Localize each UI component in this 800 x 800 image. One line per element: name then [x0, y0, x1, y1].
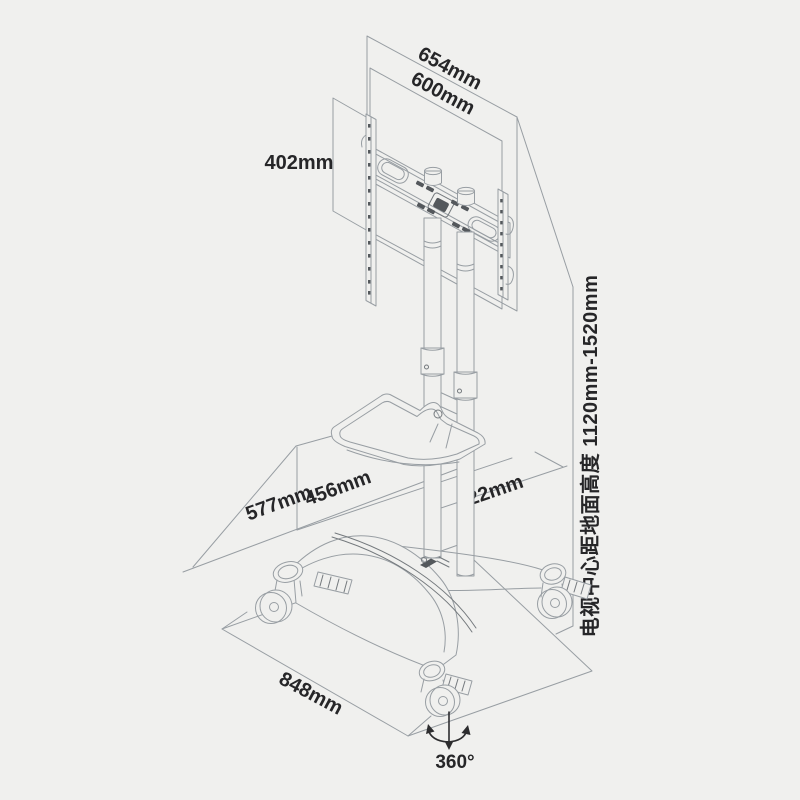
dim-label-base-width: 848mm	[275, 668, 346, 720]
column-left	[421, 218, 444, 558]
left-bracket-plate	[333, 98, 368, 231]
crossbar-knob-left	[425, 167, 442, 185]
vesa-rail-right	[498, 189, 513, 300]
diagram-canvas: 654mm 600mm 402mm 电视中心距地面高度 1120mm-1520m…	[0, 0, 800, 800]
column-right	[454, 232, 477, 576]
caster-front-hub	[439, 697, 448, 706]
caster-left-hub	[270, 603, 279, 612]
base-lock-lever	[420, 557, 449, 568]
dim-label-bracket-height: 402mm	[265, 152, 334, 174]
bracket-plate-outline	[333, 98, 368, 231]
crossbar-knob-right	[458, 187, 475, 205]
rotation-arrow-icon	[426, 712, 471, 750]
base-leg-front	[271, 533, 476, 670]
vesa-rail-right-holes	[500, 199, 502, 290]
caster-right-hub	[551, 599, 560, 608]
tv-cart-dimension-diagram: 654mm 600mm 402mm 电视中心距地面高度 1120mm-1520m…	[0, 0, 800, 800]
height-dimension	[517, 117, 573, 634]
height-dimension-leader	[517, 117, 573, 287]
caster-front	[417, 658, 472, 717]
height-dimension-tick	[556, 626, 573, 634]
dim-label-caster-rotation: 360°	[435, 752, 474, 773]
